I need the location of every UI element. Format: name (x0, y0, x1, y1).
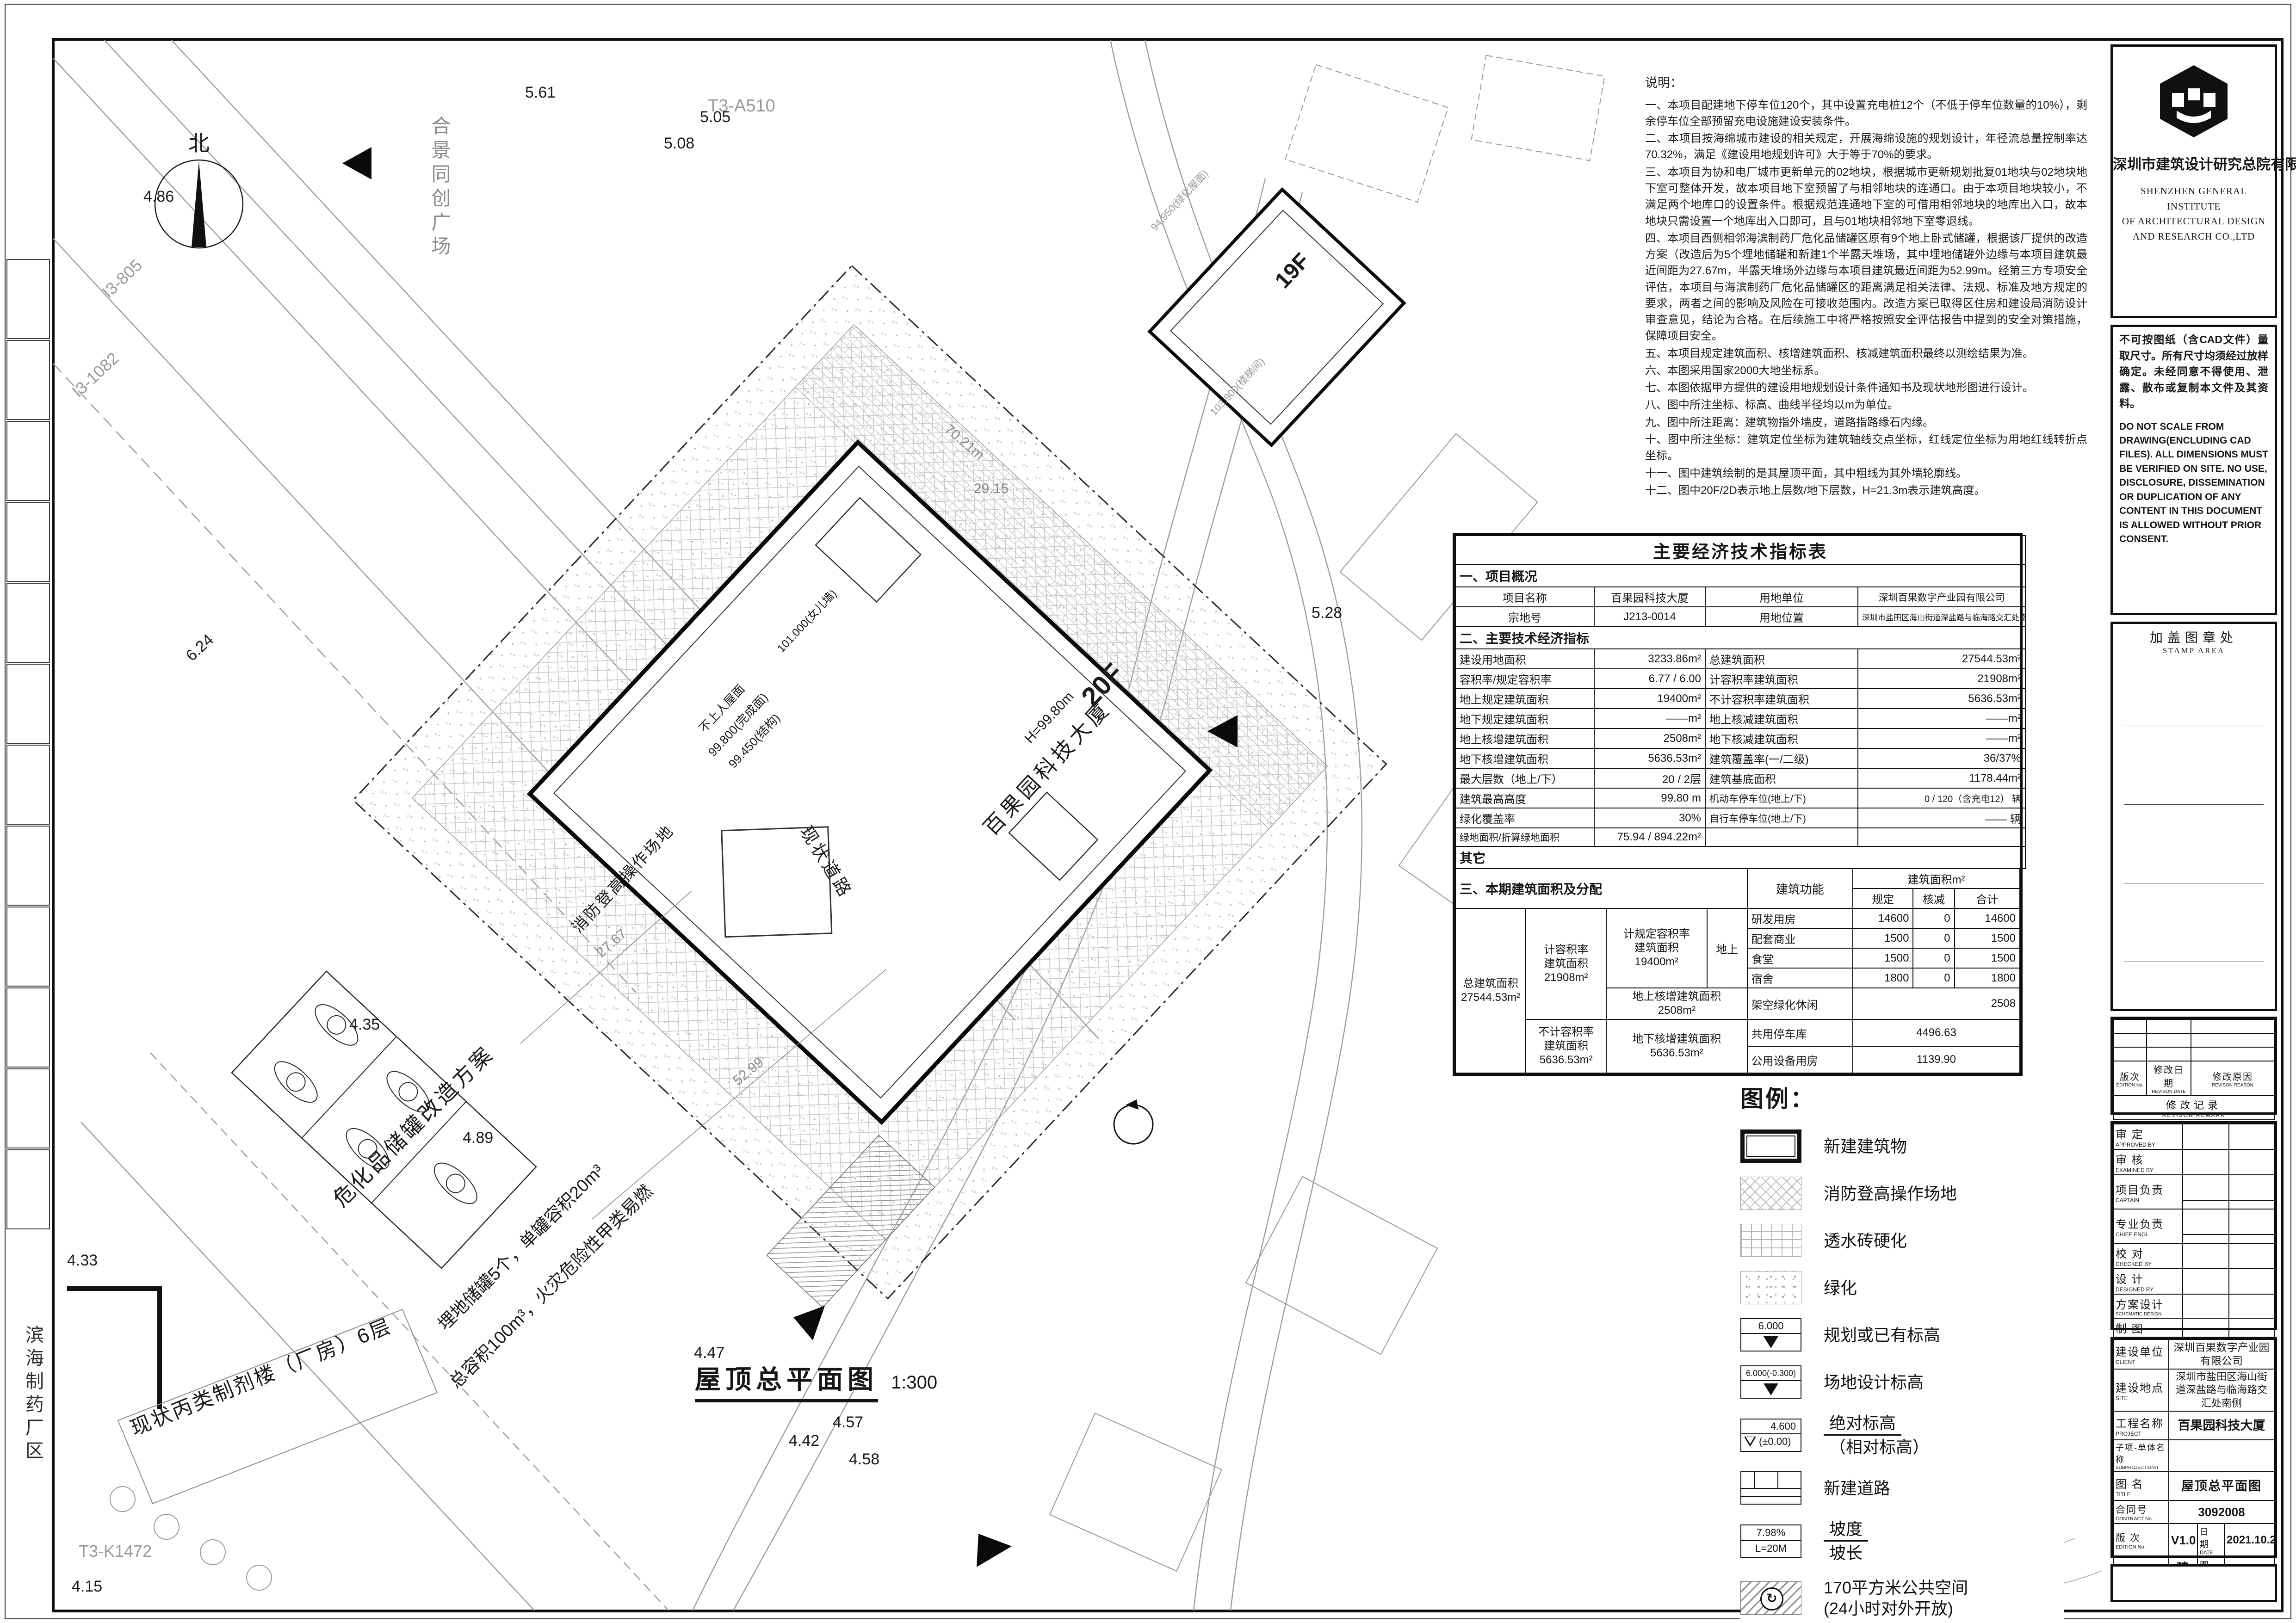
func-name: 公用设备用房 (1747, 1046, 1853, 1073)
edition-label: 版 次EDITION No. (2113, 1524, 2169, 1557)
note-item: 二、本项目按海绵城市建设的相关规定，开展海绵设施的规划设计，年径流总量控制率达7… (1645, 130, 2087, 163)
func-spec: 1800 (1853, 968, 1913, 988)
pharma-area-label: 滨海制药厂区 (19, 1325, 46, 1464)
label: 计容积率建筑面积 (1705, 669, 1858, 689)
value: 深圳百果数字产业园有限公司 (1858, 587, 2025, 607)
economic-indicator-table: 主要经济技术指标表 一、项目概况 项目名称 百果园科技大厦 用地单位 深圳百果数… (1453, 533, 2023, 1076)
label: 建筑覆盖率(一/二级) (1705, 748, 1858, 768)
company-en-line: AND RESEARCH CO.,LTD (2113, 229, 2275, 244)
spot-elevation: 4.33 (67, 1252, 98, 1269)
new-road-swatch-icon (1740, 1471, 1801, 1505)
value: 0 / 120（含充电12） 辆 (1858, 788, 2025, 808)
sign-cell (2183, 1124, 2229, 1149)
legend-item: 消防登高操作场地 (1740, 1177, 2064, 1210)
elevation-value: 6.000 (1741, 1319, 1801, 1334)
label: 项目名称 (1455, 587, 1594, 607)
legend-label: 消防登高操作场地 (1824, 1183, 1957, 1204)
stamp-rule (2124, 962, 2264, 962)
drawing-sheet: 北 百果园科技大厦 20F H=99.80m 19F 103.900(楼梯间) … (0, 0, 2296, 1623)
cell-line: 5636.53m² (1610, 1046, 1743, 1060)
label: 用地位置 (1705, 607, 1858, 627)
rev-empty-cell (2113, 1033, 2147, 1047)
rev-edition-header: 版次EDITION No. (2113, 1061, 2147, 1096)
incl-far-cell: 计容积率 建筑面积 21908m² (1526, 908, 1606, 1019)
func-tot: 1800 (1955, 968, 2020, 988)
section1-header: 一、项目概况 (1455, 565, 2025, 587)
entrance-arrow-icon (977, 1534, 1012, 1567)
value: 27544.53m² (1858, 649, 2025, 669)
sign-label: 审 核EXAMINED BY (2113, 1149, 2183, 1175)
label: 地上规定建筑面积 (1455, 689, 1594, 709)
legend-label: 场地设计标高 (1824, 1372, 1924, 1393)
subproject-value (2169, 1440, 2274, 1472)
date-label: 日 期DATE (2197, 1524, 2224, 1557)
sign-cell (2183, 1243, 2229, 1269)
spot-elevation: 4.89 (463, 1129, 493, 1147)
label: 最大层数（地上/下） (1455, 768, 1594, 788)
company-name-cn: 深圳市建筑设计研究总院有限公司 (2113, 153, 2275, 173)
indicator-table-sec3: 三、本期建筑面积及分配 建筑功能 建筑面积m² 规定 核减 合计 总建筑面积 2… (1455, 868, 2020, 1074)
indicator-table-upper: 主要经济技术指标表 一、项目概况 项目名称 百果园科技大厦 用地单位 深圳百果数… (1455, 535, 2026, 869)
edge-box (6, 421, 50, 501)
note-item: 一、本项目配建地下停车位120个，其中设置充电桩12个（不低于停车位数量的10%… (1645, 97, 2087, 130)
func-tot: 1139.90 (1853, 1046, 2020, 1073)
value: ——m² (1594, 709, 1705, 728)
stamp-label-cn: 加盖图章处 (2113, 628, 2275, 646)
legend-title: 图例： (1740, 1080, 2064, 1114)
legend: 图例： 新建建筑物 消防登高操作场地 透水砖硬化 绿化 6.000 规划或已有标… (1740, 1080, 2064, 1623)
site-value: 深圳市盐田区海山街道深盐路与临海路交汇处南侧 (2169, 1369, 2274, 1412)
legend-item: 7.98% L=20M 坡度 坡长 (1740, 1518, 2064, 1563)
legend-item: 4.600 (±0.00) 绝对标高 （相对标高） (1740, 1413, 2064, 1457)
func-name: 架空绿化休闲 (1747, 988, 1853, 1019)
filled-triangle-icon (1764, 1383, 1778, 1395)
func-spec: 1500 (1853, 928, 1913, 948)
rev-remark-footer: 修改记录REVISON REMARK (2113, 1096, 2274, 1120)
label: 建筑最高高度 (1455, 788, 1594, 808)
contract-label: 合同号CONTRACT No. (2113, 1500, 2169, 1524)
excl-far-cell: 不计容积率 建筑面积 5636.53m² (1526, 1019, 1606, 1073)
elevation-value: (±0.00) (1759, 1434, 1791, 1449)
cell-line: 地下核增建筑面积 (1610, 1032, 1743, 1046)
label: 绿化覆盖率 (1455, 808, 1594, 828)
value: 21908m² (1858, 669, 2025, 689)
plaza-label: 合景同创广场 (426, 116, 454, 260)
label: 用地单位 (1705, 587, 1858, 607)
legend-label: 新建建筑物 (1824, 1136, 1907, 1157)
value: 20 / 2层 (1594, 768, 1705, 788)
spot-elevation: 4.35 (349, 1016, 380, 1033)
above-add-cell: 地上核增建筑面积 2508m² (1606, 988, 1747, 1019)
revision-box: 版次EDITION No. 修改日期REVISON DATE 修改原因REVIS… (2110, 1017, 2277, 1115)
func-name: 食堂 (1747, 948, 1853, 968)
slope-length: L=20M (1741, 1541, 1801, 1556)
client-label: 建设单位CLIENT (2113, 1339, 2169, 1369)
note-item: 三、本项目为协和电厂城市更新单元的02地块，根据城市更新规划批复01地块与02地… (1645, 164, 2087, 229)
note-item: 七、本图依据甲方提供的建设用地规划设计条件通知书及现状地形图进行设计。 (1645, 380, 2087, 396)
value: 1178.44m² (1858, 768, 2025, 788)
edge-box (6, 987, 50, 1068)
left-signature-strip (6, 259, 50, 1230)
cell-line: 建筑面积 (1530, 957, 1602, 971)
legend-label: 绝对标高 （相对标高） (1824, 1413, 1935, 1457)
ref-label: I3-1082 (68, 349, 122, 401)
permeable-brick-swatch-icon (1740, 1224, 1801, 1257)
sign-cell (2183, 1269, 2229, 1294)
ref-label: T3-K1472 (79, 1542, 152, 1561)
func-header: 建筑功能 (1747, 869, 1853, 908)
func-ded: 0 (1913, 968, 1954, 988)
plan-title: 屋顶总平面图1:300 (695, 1359, 937, 1402)
stamp-label-en: STAMP AREA (2113, 646, 2275, 655)
sign-cell (2183, 1175, 2229, 1209)
col-header: 核减 (1913, 889, 1954, 908)
below-add-cell: 地下核增建筑面积 5636.53m² (1606, 1019, 1747, 1073)
sign-cell (2183, 1294, 2229, 1318)
cell-line: 不计容积率 (1530, 1025, 1602, 1039)
cell-line: 建筑面积 (1610, 941, 1702, 955)
func-ded: 0 (1913, 928, 1954, 948)
func-tot: 14600 (1955, 908, 2020, 928)
cell-line: 计容积率 (1530, 943, 1602, 957)
sign-cell (2229, 1243, 2274, 1269)
sign-label: 校 对CHECKED BY (2113, 1243, 2183, 1269)
col-header: 合计 (1955, 889, 2020, 908)
slope-swatch-icon: 7.98% L=20M (1740, 1524, 1801, 1558)
project-value: 百果园科技大厦 (2169, 1411, 2274, 1440)
func-tot: 1500 (1955, 948, 2020, 968)
func-tot: 4496.63 (1853, 1019, 2020, 1046)
edge-box (6, 745, 50, 825)
label: 地上核增建筑面积 (1455, 728, 1594, 748)
cell-line: 21908m² (1530, 971, 1602, 985)
func-spec: 14600 (1853, 908, 1913, 928)
label: 建筑基底面积 (1705, 768, 1858, 788)
label: 地上核减建筑面积 (1705, 709, 1858, 728)
value: 99.80 m (1594, 788, 1705, 808)
value (1858, 828, 2025, 846)
func-name: 宿舍 (1747, 968, 1853, 988)
edge-box (6, 1149, 50, 1229)
note-item: 六、本图采用国家2000大地坐标系。 (1645, 363, 2087, 379)
north-label: 北 (188, 131, 210, 155)
rev-empty-cell (2113, 1019, 2147, 1033)
label: 建设用地面积 (1455, 649, 1594, 669)
sign-cell (2229, 1149, 2274, 1175)
value: —— 辆 (1858, 808, 2025, 828)
title-value: 屋顶总平面图 (2169, 1472, 2274, 1500)
spot-elevation: 4.42 (789, 1432, 819, 1450)
plan-scale: 1:300 (891, 1372, 937, 1393)
legend-label: 新建道路 (1824, 1478, 1890, 1499)
project-info-box: 建设单位CLIENT 深圳百果数字产业园有限公司 建设地点SITE 深圳市盐田区… (2110, 1337, 2277, 1558)
planned-elevation-swatch-icon: 6.000 (1740, 1318, 1801, 1351)
cell-line: 27544.53m² (1460, 991, 1522, 1005)
func-ded: 0 (1913, 908, 1954, 928)
notes-block: 说明： 一、本项目配建地下停车位120个，其中设置充电桩12个（不低于停车位数量… (1645, 74, 2087, 500)
legend-item: ↻ 170平方米公共空间 (24小时对外开放) (1740, 1577, 2064, 1619)
sign-cell (2229, 1269, 2274, 1294)
signature-box: 审 定APPROVED BY 审 核EXAMINED BY 项目负责CAPTAI… (2110, 1121, 2277, 1330)
cell-line: 19400m² (1610, 955, 1702, 969)
spot-elevation: 5.08 (664, 135, 694, 152)
edge-box (6, 583, 50, 663)
disclaimer-cn: 不可按图纸（含CAD文件）量取尺寸。所有尺寸均须经过放样确定。未经同意不得使用、… (2119, 332, 2268, 412)
edge-box (6, 502, 50, 582)
value: 75.94 / 894.22m² (1594, 828, 1705, 846)
entrance-arrow-icon (793, 1306, 825, 1340)
label: 地下核减建筑面积 (1705, 728, 1858, 748)
notes-title: 说明： (1645, 74, 2087, 93)
plan-title-text: 屋顶总平面图 (695, 1359, 878, 1402)
note-item: 五、本项目规定建筑面积、核增建筑面积、核减建筑面积最终以测绘结果为准。 (1645, 346, 2087, 362)
legend-label-line: 170平方米公共空间 (1824, 1578, 1968, 1597)
legend-item: 新建道路 (1740, 1471, 2064, 1505)
value: 2508m² (1594, 728, 1705, 748)
legend-label: 透水砖硬化 (1824, 1230, 1907, 1251)
note-item: 十二、图中20F/2D表示地上层数/地下层数，H=21.3m表示建筑高度。 (1645, 482, 2087, 499)
label: 机动车停车位(地上/下) (1705, 788, 1858, 808)
label: 地下核增建筑面积 (1455, 748, 1594, 768)
cell-line: 总建筑面积 (1460, 977, 1522, 991)
spot-elevation: 5.61 (525, 84, 556, 101)
legend-item: 绿化 (1740, 1271, 2064, 1304)
value: 5636.53m² (1594, 748, 1705, 768)
public-space-icon (1114, 1099, 1153, 1144)
contract-value: 3092008 (2169, 1500, 2274, 1524)
date-value: 2021.10.20 (2224, 1524, 2274, 1557)
company-box: 深圳市建筑设计研究总院有限公司 SHENZHEN GENERAL INSTITU… (2110, 44, 2277, 318)
fire-access-swatch-icon (1740, 1177, 1801, 1210)
design-elevation-swatch-icon: 6.000(-0.300) (1740, 1365, 1801, 1399)
public-space-swatch-icon: ↻ (1740, 1581, 1801, 1615)
col-header: 规定 (1853, 889, 1913, 908)
cell-line: 5636.53m² (1530, 1053, 1602, 1067)
stamp-box: 加盖图章处 STAMP AREA (2110, 622, 2277, 1011)
cell-line: 建筑面积 (1530, 1039, 1602, 1053)
company-logo (2154, 64, 2233, 138)
elevation-value: 4.600 (1741, 1419, 1801, 1434)
sign-cell (2229, 1294, 2274, 1318)
client-value: 深圳百果数字产业园有限公司 (2169, 1339, 2274, 1369)
edge-box (6, 826, 50, 906)
absolute-elevation-swatch-icon: 4.600 (±0.00) (1740, 1419, 1801, 1452)
stamp-rule (2124, 726, 2264, 726)
sign-cell (2229, 1124, 2274, 1149)
rev-empty-cell (2147, 1033, 2191, 1047)
legend-item: 透水砖硬化 (1740, 1224, 2064, 1257)
stamp-rule (2124, 883, 2264, 883)
value: J213-0014 (1594, 607, 1705, 627)
legend-label-line: (24小时对外开放) (1824, 1598, 1968, 1619)
sign-cell (2183, 1209, 2229, 1243)
spot-elevation: 4.86 (143, 188, 174, 205)
legend-label: 规划或已有标高 (1824, 1325, 1940, 1345)
section3-header: 三、本期建筑面积及分配 (1455, 869, 1747, 908)
func-tot: 1500 (1955, 928, 2020, 948)
edge-box (6, 259, 50, 339)
value: ——m² (1858, 709, 2025, 728)
roof-elev-label: 94.950(绿化屋面) (1148, 167, 1210, 233)
disclaimer-en: DO NOT SCALE FROM DRAWING(ENCLUDING CAD … (2119, 420, 2268, 547)
rev-empty-cell (2147, 1047, 2191, 1061)
sign-label: 专业负责CHIEF ENGI. (2113, 1209, 2183, 1243)
label: 宗地号 (1455, 607, 1594, 627)
slope-value: 7.98% (1741, 1525, 1801, 1541)
edge-box (6, 1068, 50, 1148)
func-tot: 2508 (1853, 988, 2020, 1019)
cell-line: 地上核增建筑面积 (1610, 990, 1743, 1004)
project-label: 工程名称PROJECT (2113, 1411, 2169, 1440)
table-title: 主要经济技术指标表 (1455, 536, 2025, 565)
stamp-rule (2124, 804, 2264, 805)
area-header: 建筑面积m² (1853, 869, 2020, 889)
label: 不计容积率建筑面积 (1705, 689, 1858, 709)
legend-label-line: 绝对标高 (1824, 1413, 1901, 1436)
edition-value: V1.0 (2169, 1524, 2197, 1557)
edge-box (6, 907, 50, 987)
company-en-line: OF ARCHITECTURAL DESIGN (2113, 214, 2275, 229)
sign-label: 方案设计SCHEMATIC DESIGN (2113, 1294, 2183, 1318)
sign-label: 审 定APPROVED BY (2113, 1124, 2183, 1149)
bottom-empty-box (2110, 1564, 2277, 1602)
spec-far-cell: 计规定容积率 建筑面积 19400m² (1606, 908, 1707, 988)
value: 百果园科技大厦 (1594, 587, 1705, 607)
open-triangle-icon (1744, 1437, 1756, 1447)
value: ——m² (1858, 728, 2025, 748)
spot-elevation: 4.58 (849, 1450, 879, 1468)
value: 6.77 / 6.00 (1594, 669, 1705, 689)
label (1705, 828, 1858, 846)
subproject-label: 子项-单体名称SUBPROJECT-UNIT (2113, 1440, 2169, 1472)
func-name: 共用停车库 (1747, 1019, 1853, 1046)
entrance-arrow-icon (342, 147, 371, 179)
note-item: 八、图中所注坐标、标高、曲线半径均以m为单位。 (1645, 397, 2087, 413)
pharma-building-label: 现状丙类制剂楼（厂房）6层 (127, 1314, 395, 1440)
spot-elevation: 6.24 (183, 631, 217, 665)
adjacent-building-19f (1150, 190, 1404, 445)
sign-label: 项目负责CAPTAIN (2113, 1175, 2183, 1209)
rev-empty-cell (2191, 1047, 2274, 1061)
spot-elevation: 5.28 (1312, 604, 1342, 622)
legend-label-line: （相对标高） (1824, 1436, 1935, 1457)
func-name: 配套商业 (1747, 928, 1853, 948)
note-item: 十、图中所注坐标：建筑定位坐标为建筑轴线交点坐标，红线定位坐标为用地红线转折点坐… (1645, 432, 2087, 464)
spot-elevation: 4.57 (833, 1413, 863, 1431)
dim-label: 29.15 (974, 481, 1009, 496)
cell-line: 2508m² (1610, 1004, 1743, 1018)
company-name-en: SHENZHEN GENERAL INSTITUTE OF ARCHITECTU… (2113, 184, 2275, 244)
legend-item: 6.000 规划或已有标高 (1740, 1318, 2064, 1351)
func-ded: 0 (1913, 948, 1954, 968)
title-label: 图 名TITLE (2113, 1472, 2169, 1500)
rev-empty-cell (2191, 1033, 2274, 1047)
legend-label: 绿化 (1824, 1277, 1857, 1298)
other-row: 其它 (1455, 846, 2025, 869)
section2-header: 二、主要技术经济指标 (1455, 627, 2025, 649)
edge-box (6, 664, 50, 744)
note-item: 十一、图中建筑绘制的是其屋顶平面，其中粗线为其外墙轮廓线。 (1645, 465, 2087, 481)
note-item: 九、图中所注距离：建筑物指外墙皮，道路指路缘石内缘。 (1645, 414, 2087, 431)
new-building-swatch-icon (1740, 1129, 1801, 1163)
cell-line: 计规定容积率 (1610, 927, 1702, 941)
value: 5636.53m² (1858, 689, 2025, 709)
site-label: 建设地点SITE (2113, 1369, 2169, 1412)
note-item: 四、本项目西侧相邻海滨制药厂危化品储罐区原有9个地上卧式储罐，根据该厂提供的改造… (1645, 230, 2087, 345)
sign-cell (2229, 1209, 2274, 1243)
value: 深圳市盐田区海山街道深盐路与临海路交汇处南侧 (1858, 607, 2025, 627)
label: 总建筑面积 (1705, 649, 1858, 669)
legend-item: 6.000(-0.300) 场地设计标高 (1740, 1365, 2064, 1399)
label: 自行车停车位(地上/下) (1705, 808, 1858, 828)
elevation-value: 6.000(-0.300) (1741, 1366, 1801, 1381)
disclaimer-box: 不可按图纸（含CAD文件）量取尺寸。所有尺寸均须经过放样确定。未经同意不得使用、… (2110, 325, 2277, 615)
spot-elevation: 5.05 (700, 108, 730, 126)
label: 容积率/规定容积率 (1455, 669, 1594, 689)
sign-cell (2229, 1175, 2274, 1209)
legend-item: 新建建筑物 (1740, 1129, 2064, 1163)
total-area-cell: 总建筑面积 27544.53m² (1455, 908, 1526, 1073)
func-spec: 1500 (1853, 948, 1913, 968)
spot-elevation: 4.15 (72, 1578, 102, 1595)
rev-empty-cell (2113, 1047, 2147, 1061)
rev-date-header: 修改日期REVISON DATE (2147, 1061, 2191, 1096)
value: 3233.86m² (1594, 649, 1705, 669)
value: 30% (1594, 808, 1705, 828)
legend-label-line: 坡度 (1824, 1518, 1868, 1542)
legend-label-line: 坡长 (1824, 1542, 1868, 1563)
rev-empty-cell (2147, 1019, 2191, 1033)
sign-label: 设 计DESIGNED BY (2113, 1269, 2183, 1294)
value: 36/37% (1858, 748, 2025, 768)
value: 19400m² (1594, 689, 1705, 709)
edge-box (6, 340, 50, 420)
legend-label: 170平方米公共空间 (24小时对外开放) (1824, 1577, 1968, 1619)
label: 绿地面积/折算绿地面积 (1455, 828, 1594, 846)
rev-empty-cell (2191, 1019, 2274, 1033)
above-ground-cell: 地上 (1707, 908, 1747, 988)
tank-farm (232, 971, 536, 1268)
rev-reason-header: 修改原因REVISON REASON (2191, 1061, 2274, 1096)
label: 地下规定建筑面积 (1455, 709, 1594, 728)
sign-cell (2183, 1149, 2229, 1175)
func-name: 研发用房 (1747, 908, 1853, 928)
company-en-line: SHENZHEN GENERAL INSTITUTE (2113, 184, 2275, 214)
filled-triangle-icon (1764, 1336, 1778, 1348)
greening-swatch-icon (1740, 1271, 1801, 1304)
legend-label: 坡度 坡长 (1824, 1518, 1868, 1563)
ref-label: I3-805 (98, 255, 146, 302)
